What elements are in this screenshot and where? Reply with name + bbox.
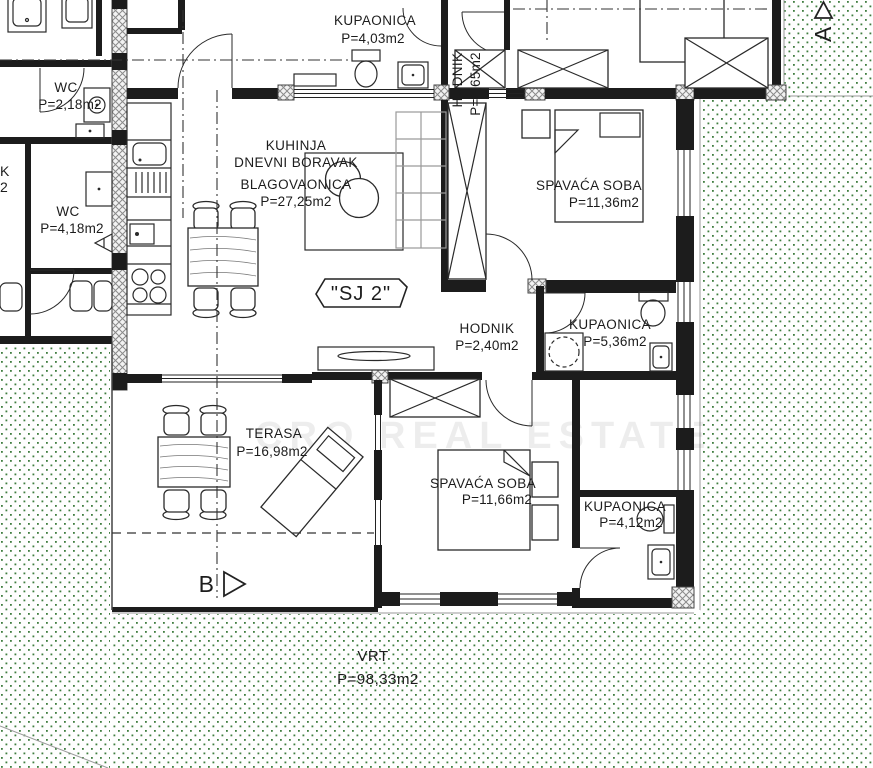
svg-text:P=1,65m2: P=1,65m2 xyxy=(468,52,483,116)
dining-set xyxy=(188,202,258,318)
unit-badge-label: "SJ 2" xyxy=(331,283,391,305)
section-marker-b: B xyxy=(199,571,245,597)
svg-text:HODNIK: HODNIK xyxy=(460,321,515,336)
kitchen-stove xyxy=(132,269,166,303)
svg-text:P=4,03m2: P=4,03m2 xyxy=(341,31,405,46)
floor-plan-page: CRO REAL ESTATE xyxy=(0,0,873,768)
window-right-bedroom xyxy=(676,150,694,216)
svg-text:2: 2 xyxy=(0,179,8,195)
svg-text:P=98,33m2: P=98,33m2 xyxy=(337,671,419,688)
svg-text:K: K xyxy=(0,163,10,179)
svg-text:SPAVAĆA SOBA: SPAVAĆA SOBA xyxy=(430,476,536,491)
fixture-kupaonica-top xyxy=(294,50,428,88)
svg-text:P=27,25m2: P=27,25m2 xyxy=(260,194,331,209)
svg-text:SPAVAĆA SOBA: SPAVAĆA SOBA xyxy=(536,178,642,193)
svg-text:VRT: VRT xyxy=(357,648,388,665)
svg-text:P=11,36m2: P=11,36m2 xyxy=(569,195,639,210)
floor-plan-svg: CRO REAL ESTATE xyxy=(0,0,873,768)
svg-text:KUPAONICA: KUPAONICA xyxy=(584,499,666,514)
window-terrace-slider xyxy=(162,375,282,382)
door-bedroom-top xyxy=(486,234,532,280)
svg-text:WC: WC xyxy=(54,80,77,95)
svg-text:P=2,40m2: P=2,40m2 xyxy=(455,338,519,353)
label-hodnik-mid: HODNIK P=2,40m2 xyxy=(455,321,519,353)
label-wc-small: WC P=2,18m2 xyxy=(38,80,102,112)
fixture-left-lower xyxy=(0,281,112,311)
svg-text:DNEVNI BORAVAK: DNEVNI BORAVAK xyxy=(234,155,358,170)
window-living-top xyxy=(294,90,434,98)
kitchen-drainer xyxy=(136,172,166,193)
window-right-bathroom xyxy=(676,282,694,322)
neighbour-wardrobes xyxy=(455,38,768,88)
svg-text:A: A xyxy=(810,26,836,42)
fixture-wc-small xyxy=(76,88,110,138)
fixture-topleft xyxy=(8,0,92,32)
svg-text:KUHINJA: KUHINJA xyxy=(266,138,327,153)
svg-text:P=5,36m2: P=5,36m2 xyxy=(583,334,647,349)
terrace-dining-set xyxy=(158,406,230,520)
door-kupaonica-top xyxy=(178,34,232,88)
door-bathroom-bottom xyxy=(580,548,620,588)
svg-text:KUPAONICA: KUPAONICA xyxy=(569,317,651,332)
svg-text:BLAGOVAONICA: BLAGOVAONICA xyxy=(240,177,351,192)
fixture-wc-large xyxy=(86,172,112,252)
door-wc-large xyxy=(30,270,74,314)
wardrobe-top xyxy=(448,103,486,279)
unit-badge: "SJ 2" xyxy=(316,279,407,307)
svg-text:B: B xyxy=(199,571,214,597)
svg-text:WC: WC xyxy=(56,204,79,219)
sideboard xyxy=(318,347,434,370)
wardrobe-bottom xyxy=(390,379,480,417)
partial-labels-left-edge: K 2 xyxy=(0,163,10,195)
kitchen-appliance xyxy=(130,224,154,244)
label-kupaonica-bottom: KUPAONICA P=4,12m2 xyxy=(584,499,666,530)
label-wc-large: WC P=4,18m2 xyxy=(40,204,104,236)
svg-text:HODNIK: HODNIK xyxy=(450,53,465,108)
svg-text:P=16,98m2: P=16,98m2 xyxy=(236,444,307,459)
svg-text:P=4,12m2: P=4,12m2 xyxy=(599,515,663,530)
svg-text:TERASA: TERASA xyxy=(246,426,302,441)
svg-text:P=11,66m2: P=11,66m2 xyxy=(462,492,532,507)
svg-text:KUPAONICA: KUPAONICA xyxy=(334,13,416,28)
svg-text:P=2,18m2: P=2,18m2 xyxy=(38,97,102,112)
kitchen-counter xyxy=(127,103,171,315)
label-kupaonica-top: KUPAONICA P=4,03m2 xyxy=(334,13,416,46)
svg-text:P=4,18m2: P=4,18m2 xyxy=(40,221,104,236)
door-hodnik-top xyxy=(403,8,504,54)
kitchen-sink xyxy=(133,143,166,165)
